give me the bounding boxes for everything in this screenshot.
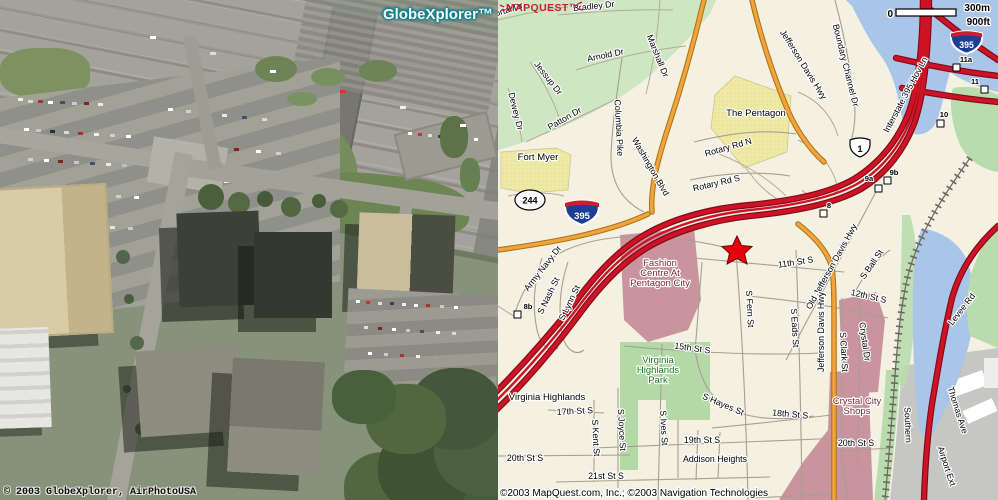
street-label: 20th St S	[838, 438, 874, 448]
tree-cluster	[440, 116, 468, 158]
highway-vehicles	[150, 36, 156, 39]
street-label: S Fern St	[744, 290, 756, 328]
va-244-shield: 244	[515, 190, 545, 210]
split-view: GlobeXplorer™ © 2003 GlobeXplorer, AirPh…	[0, 0, 998, 500]
building	[135, 345, 241, 438]
building	[0, 327, 52, 429]
place-label-fort-myer: Fort Myer	[518, 152, 559, 163]
parked-cars	[18, 98, 23, 101]
place-label-pentagon: The Pentagon	[726, 108, 786, 119]
place-label-va-highlands-park: Park	[648, 375, 668, 386]
exit-label: 11	[971, 77, 980, 86]
exit-label: 11a	[960, 55, 973, 64]
exit-label: 10	[940, 110, 948, 119]
exit-label: 8	[827, 201, 831, 210]
street-label: S Kent St	[590, 419, 602, 457]
shield-number: 395	[959, 40, 974, 50]
street-label: S Ives St	[658, 410, 670, 446]
parked-cars	[408, 132, 412, 135]
mapquest-logo-text: MAPQUEST™	[506, 2, 580, 14]
scale-zero: 0	[887, 9, 893, 20]
tree-cluster	[198, 184, 224, 210]
tree-cluster	[255, 56, 297, 82]
map-copyright: ©2003 MapQuest.com, Inc.; ©2003 Navigati…	[500, 488, 768, 499]
street-label: Addison Heights	[683, 454, 748, 464]
place-label-fashion-centre: Pentagon City	[630, 278, 690, 289]
street-label: 19th St S	[684, 435, 720, 445]
street-map-svg: 11a 11 10 9b 9a	[498, 0, 998, 500]
building	[0, 183, 114, 339]
street-label: S Eads St	[789, 308, 801, 348]
exit-label: 9a	[865, 174, 874, 183]
shield-number: 244	[522, 196, 537, 206]
building	[176, 211, 261, 308]
building	[227, 358, 325, 477]
street-label: Southern	[902, 407, 913, 443]
aerial-photo-pane[interactable]: GlobeXplorer™ © 2003 GlobeXplorer, AirPh…	[0, 0, 498, 500]
street-label: 17th St S	[557, 405, 594, 417]
place-label-crystal-city-shops: Shops	[844, 406, 871, 417]
tree-cluster	[116, 250, 130, 264]
street-label: 20th St S	[507, 453, 543, 463]
globexplorer-logo: GlobeXplorer™	[383, 6, 493, 23]
street-label: S Clark St	[838, 332, 850, 373]
mapquest-logo: MAPQUEST™	[500, 2, 583, 14]
street-label: 21st St S	[588, 471, 624, 481]
aerial-copyright: © 2003 GlobeXplorer, AirPhotoUSA	[4, 487, 196, 498]
scale-bar	[896, 9, 956, 16]
scale-metric: 300m	[964, 3, 990, 14]
exit-label: 9b	[890, 168, 899, 177]
shield-number: 1	[857, 144, 862, 154]
street-label: Jefferson Davis Hwy	[816, 291, 826, 372]
place-label-virginia-highlands: Virginia Highlands	[509, 392, 586, 403]
tree-cluster	[332, 370, 396, 424]
exit-label: 8b	[524, 302, 533, 311]
street-map-pane[interactable]: 11a 11 10 9b 9a	[498, 0, 998, 500]
scale-imperial: 900ft	[967, 17, 991, 28]
parked-cars	[356, 300, 360, 303]
shield-number: 395	[574, 211, 591, 222]
building	[254, 232, 332, 318]
